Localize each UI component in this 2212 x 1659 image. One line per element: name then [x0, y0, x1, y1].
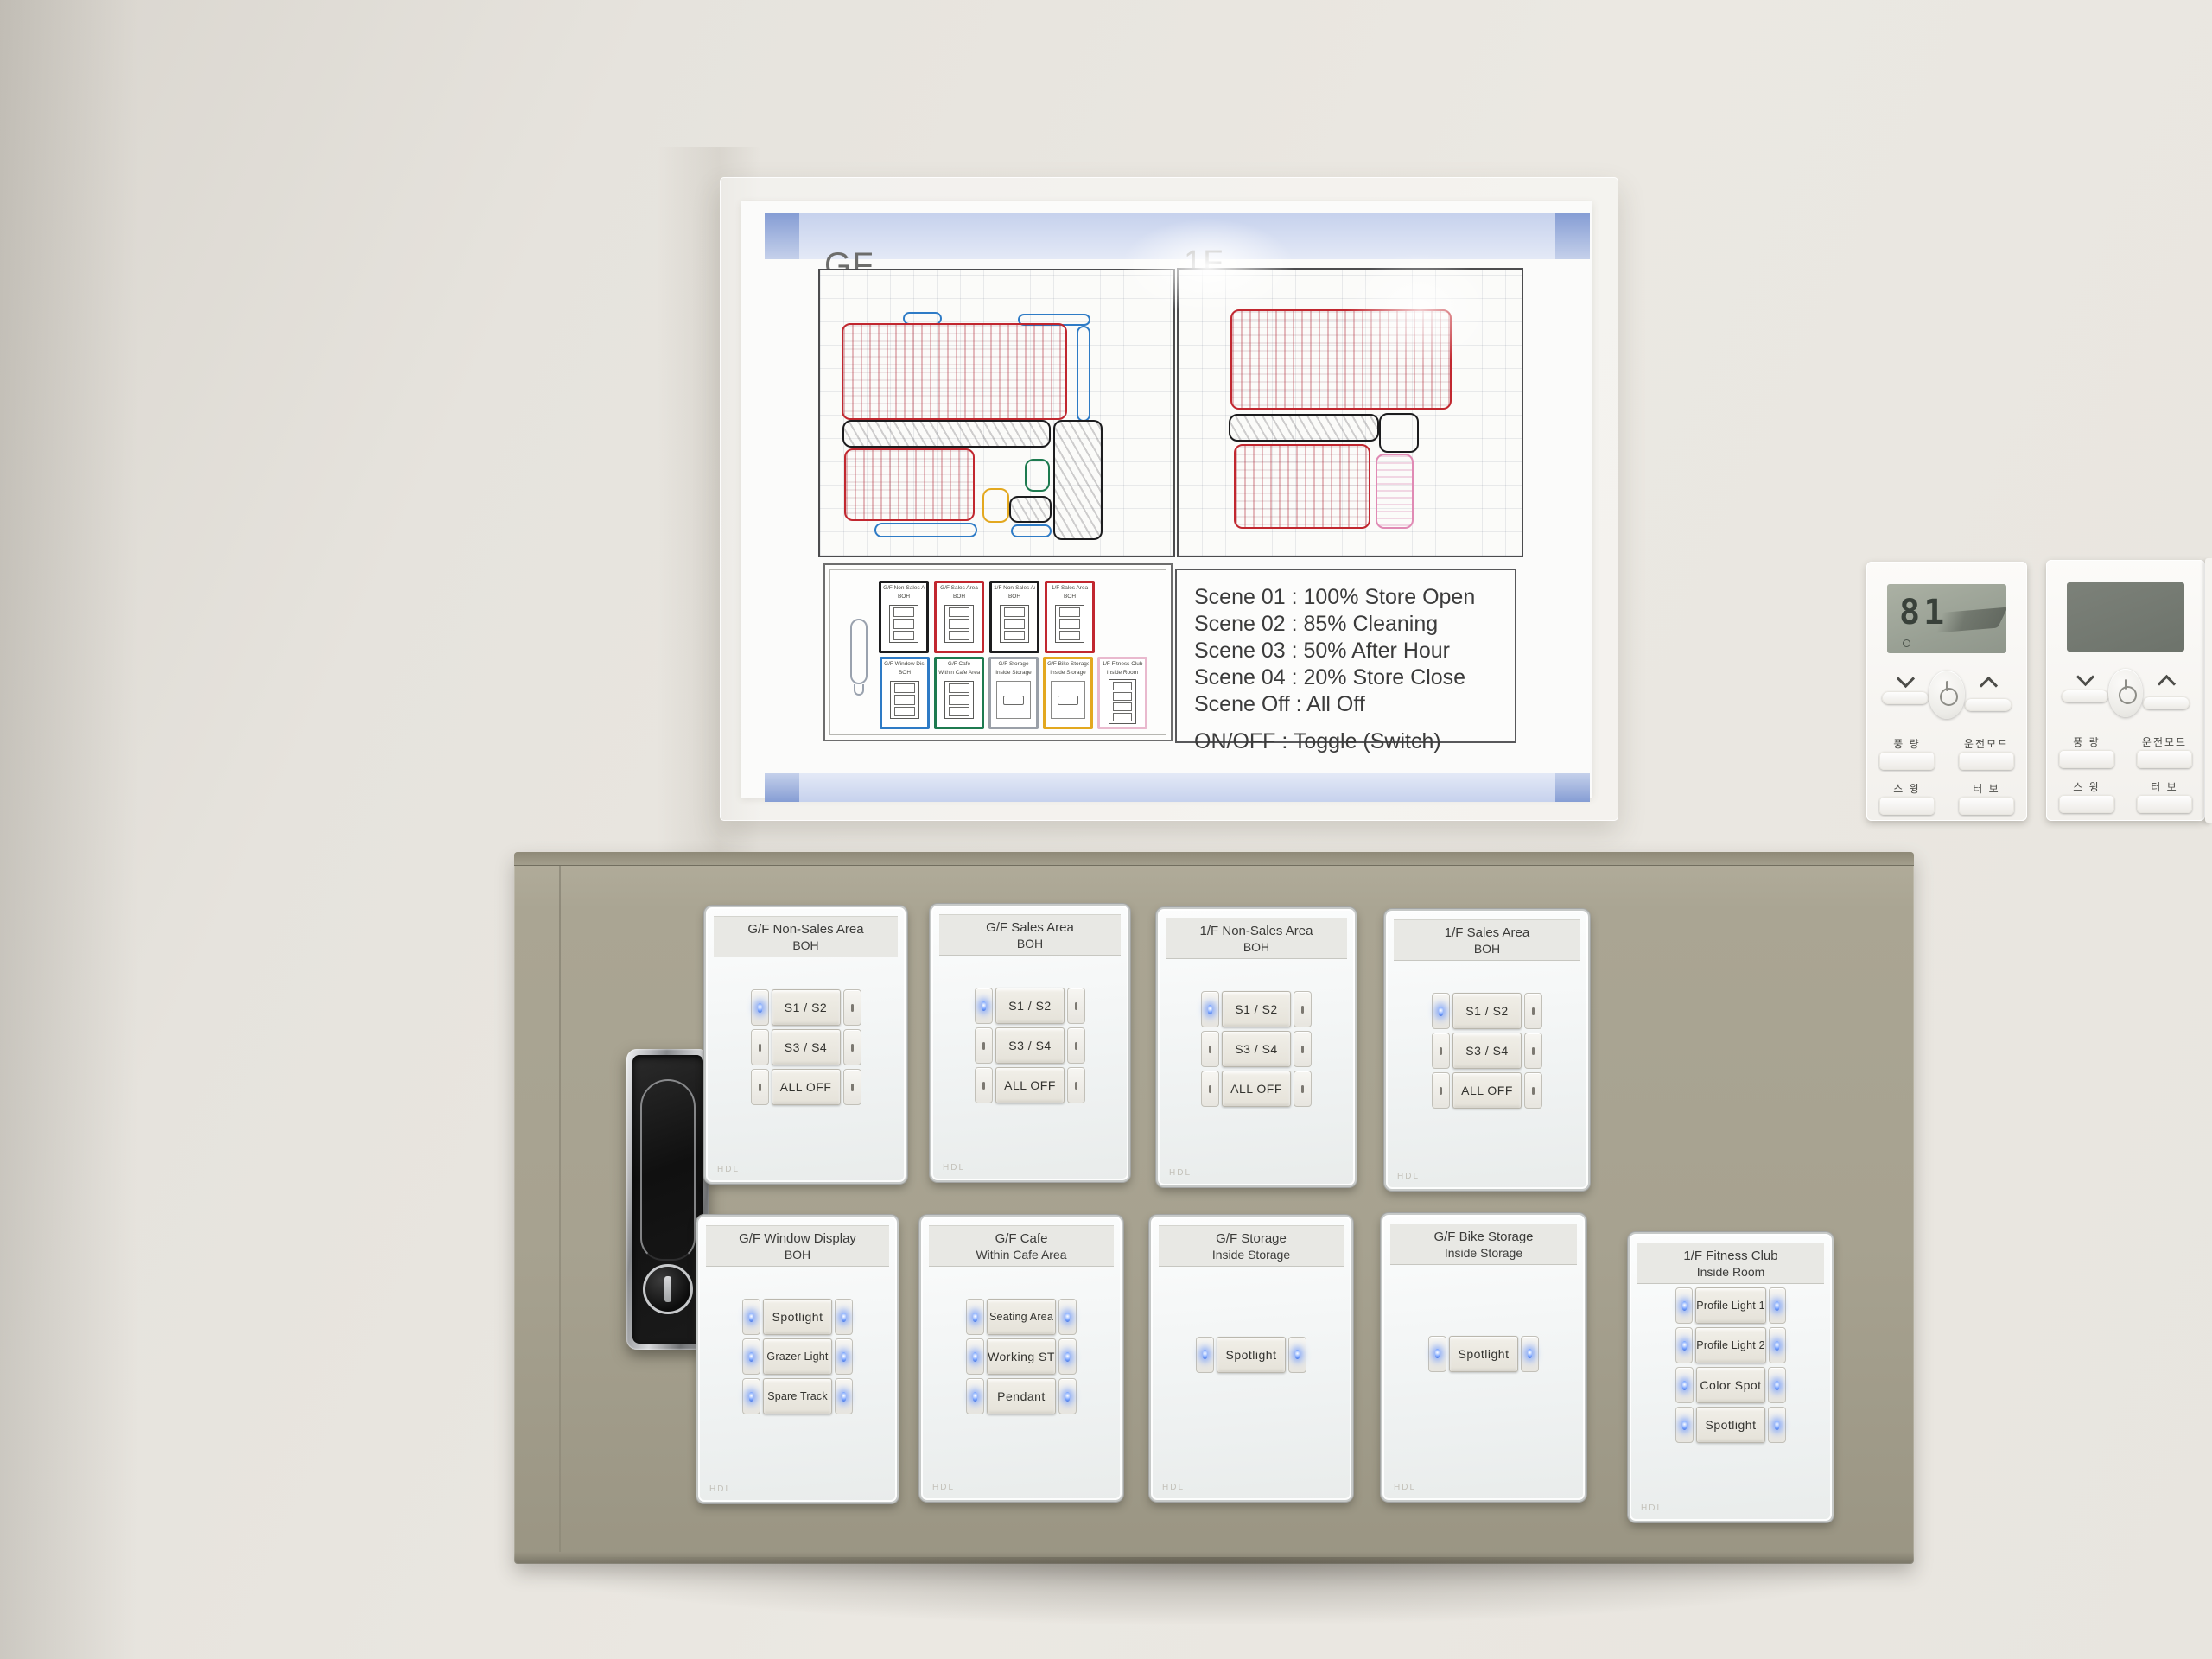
- bulb-diagram: [844, 619, 875, 709]
- diagram-cell: [1003, 696, 1024, 705]
- floorplan-zone: [982, 488, 1009, 523]
- bulb-outline: [850, 619, 868, 684]
- led-indicator: [1775, 1421, 1779, 1430]
- turbo-label: 터 보: [2151, 779, 2177, 791]
- switch-button-cap[interactable]: [975, 988, 993, 1024]
- controller-main-buttons: [1882, 669, 2012, 729]
- switch-button-row[interactable]: Profile Light 2: [1675, 1327, 1786, 1363]
- switch-button[interactable]: S3 / S4: [995, 1027, 1065, 1064]
- diagram-cell: [893, 631, 914, 640]
- switch-button-cap[interactable]: [742, 1299, 760, 1335]
- handle-grip[interactable]: [640, 1079, 696, 1261]
- switch-button[interactable]: Color Spot: [1696, 1367, 1765, 1403]
- up-button[interactable]: [2143, 667, 2190, 709]
- switch-button-cap[interactable]: [1432, 1033, 1450, 1069]
- diagram-cell: [1004, 607, 1025, 617]
- switch-button-cap[interactable]: [835, 1299, 853, 1335]
- led-slot: [982, 1042, 985, 1050]
- switch-button[interactable]: S1 / S2: [995, 988, 1065, 1024]
- switch-button-row[interactable]: Spotlight: [742, 1299, 853, 1335]
- legend-mini-panel: G/F Bike StorageInside Storage: [1043, 657, 1093, 729]
- legend-mini-switch-diagram: [1055, 605, 1084, 643]
- floorplan-zone: [1234, 444, 1371, 529]
- switch-button-cap[interactable]: [1294, 1031, 1312, 1067]
- floorplan-zone: [1077, 326, 1090, 422]
- led-indicator: [1065, 1352, 1070, 1362]
- switch-button-cap[interactable]: [1675, 1287, 1693, 1324]
- panel-title-line2: Within Cafe Area: [929, 1247, 1114, 1262]
- diagram-cell: [894, 683, 915, 693]
- diagram-cell: [894, 695, 915, 704]
- power-button[interactable]: [2108, 669, 2143, 717]
- switch-button[interactable]: S3 / S4: [772, 1029, 841, 1065]
- led-indicator: [1682, 1301, 1687, 1311]
- operation-mode-label: 운전모드: [1964, 736, 2009, 748]
- diagram-cell: [1113, 682, 1132, 690]
- switch-button-cap[interactable]: [843, 989, 861, 1026]
- legend-mini-panel: G/F Non-Sales AreaBOH: [879, 581, 929, 653]
- switch-button-cap[interactable]: [1428, 1336, 1446, 1372]
- switch-button-cap[interactable]: [975, 1027, 993, 1064]
- chevron-up-icon: [1979, 677, 1997, 695]
- switch-button-stack: Profile Light 1Profile Light 2Color Spot…: [1630, 1287, 1832, 1460]
- turbo-label: 터 보: [1973, 781, 1999, 793]
- switch-button-cap[interactable]: [1769, 1287, 1786, 1324]
- switch-button-cap[interactable]: [1524, 1033, 1542, 1069]
- brand-mark: HDL: [1162, 1483, 1185, 1492]
- led-indicator: [842, 1313, 846, 1322]
- switch-button-cap[interactable]: [1294, 1071, 1312, 1107]
- switch-button-row[interactable]: S1 / S2: [975, 988, 1085, 1024]
- turbo-button[interactable]: 터 보: [1959, 781, 2014, 815]
- switch-panel-gf-bike-storage: G/F Bike Storage Inside Storage Spotligh…: [1381, 1213, 1586, 1502]
- swing-label: 스 윙: [2073, 779, 2100, 791]
- switch-button-cap[interactable]: [1769, 1327, 1786, 1363]
- switch-button[interactable]: Seating Area: [987, 1299, 1056, 1335]
- legend-mini-title: 1/F Non-Sales Area: [994, 585, 1035, 591]
- switch-button[interactable]: Spotlight: [1217, 1337, 1286, 1373]
- switch-button[interactable]: Working ST: [987, 1338, 1056, 1375]
- legend-mini-switch-diagram: [944, 681, 974, 719]
- switch-button-cap[interactable]: [1432, 1072, 1450, 1109]
- panel-title-line2: Inside Storage: [1390, 1245, 1577, 1261]
- legend-mini-subtitle: Inside Storage: [993, 670, 1034, 676]
- diagram-cell: [1059, 631, 1080, 640]
- led-slot: [759, 1084, 761, 1091]
- diagram-cell: [1059, 607, 1080, 617]
- switch-button-cap[interactable]: [1196, 1337, 1214, 1373]
- switch-button-cap[interactable]: [1675, 1327, 1693, 1363]
- poster-top-banner: [765, 213, 1590, 259]
- switch-button[interactable]: S3 / S4: [1452, 1033, 1522, 1069]
- switch-button-cap[interactable]: [1675, 1367, 1694, 1403]
- led-indicator: [973, 1352, 977, 1362]
- switch-panel-gf-window-display: G/F Window Display BOH SpotlightGrazer L…: [696, 1215, 899, 1503]
- switch-button-cap[interactable]: [843, 1069, 861, 1105]
- legend-mini-title: 1/F Sales Area: [1049, 585, 1090, 591]
- down-key[interactable]: [1882, 691, 1929, 704]
- switch-button-cap[interactable]: [975, 1067, 993, 1103]
- switch-button-row[interactable]: S3 / S4: [975, 1027, 1085, 1064]
- legend-mini-switch-diagram: [1051, 681, 1085, 719]
- switch-button-row[interactable]: S1 / S2: [1201, 991, 1312, 1027]
- turbo-key[interactable]: [1959, 797, 2014, 815]
- brand-mark: HDL: [943, 1163, 965, 1173]
- poster-paper: GF 1F G/F Non-Sales AreaBOHG/F Sales Are…: [741, 201, 1592, 798]
- floorplan-zone: [1229, 414, 1380, 441]
- switch-button-cap[interactable]: [1768, 1407, 1786, 1443]
- controller-edge-sliver: [2205, 558, 2212, 823]
- panel-title-line1: 1/F Fitness Club: [1637, 1248, 1824, 1264]
- floorplan-zone: [1230, 309, 1452, 410]
- switch-button-cap[interactable]: [1067, 1067, 1085, 1103]
- switch-button-cap[interactable]: [1768, 1367, 1786, 1403]
- switch-button-row[interactable]: S3 / S4: [1201, 1031, 1312, 1067]
- switch-button-cap[interactable]: [966, 1299, 984, 1335]
- turbo-key[interactable]: [2137, 795, 2192, 813]
- switch-button-cap[interactable]: [966, 1378, 984, 1414]
- legend-mini-subtitle: BOH: [1049, 594, 1090, 600]
- switch-button[interactable]: ALL OFF: [1222, 1071, 1291, 1107]
- switch-button[interactable]: S1 / S2: [1222, 991, 1291, 1027]
- switch-button-row[interactable]: S1 / S2: [1432, 993, 1542, 1029]
- switch-button-row[interactable]: ALL OFF: [975, 1067, 1085, 1103]
- switch-button-row[interactable]: Pendant: [966, 1378, 1077, 1414]
- lcd-degree-icon: [1903, 639, 1910, 647]
- led-indicator: [973, 1392, 977, 1402]
- diagram-cell: [949, 631, 969, 640]
- switch-button-cap[interactable]: [1201, 1031, 1219, 1067]
- led-slot: [1440, 1047, 1442, 1055]
- led-slot: [1440, 1087, 1442, 1095]
- diagram-cell: [949, 607, 969, 617]
- switch-button[interactable]: ALL OFF: [995, 1067, 1065, 1103]
- legend-mini-subtitle: BOH: [938, 594, 980, 600]
- controller-lcd: 81: [1887, 584, 2006, 653]
- led-indicator: [758, 1003, 762, 1013]
- diagram-cell: [1113, 692, 1132, 701]
- legend-mini-subtitle: BOH: [884, 670, 925, 676]
- switch-button-cap[interactable]: [1058, 1378, 1077, 1414]
- panel-title-line1: 1/F Non-Sales Area: [1166, 923, 1347, 939]
- chevron-down-icon: [2075, 668, 2094, 686]
- switch-button-stack: S1 / S2S3 / S4ALL OFF: [706, 989, 906, 1122]
- switch-panel-1f-fitness-club: 1/F Fitness Club Inside Room Profile Lig…: [1628, 1232, 1834, 1522]
- panel-title-line1: G/F Non-Sales Area: [714, 921, 898, 938]
- panel-title-line2: Inside Storage: [1159, 1247, 1344, 1262]
- scene-list: Scene 01 : 100% Store Open Scene 02 : 85…: [1175, 569, 1516, 743]
- floorplan-zone: [1011, 524, 1052, 537]
- legend-mini-panel: 1/F Fitness ClubInside Room: [1097, 657, 1147, 729]
- panel-title-line2: BOH: [1394, 941, 1580, 957]
- switch-button-row[interactable]: S3 / S4: [1432, 1033, 1542, 1069]
- switch-button-stack: S1 / S2S3 / S4ALL OFF: [1386, 993, 1588, 1128]
- switch-button-cap[interactable]: [1067, 988, 1085, 1024]
- switch-button-row[interactable]: ALL OFF: [1432, 1072, 1542, 1109]
- led-indicator: [1682, 1421, 1687, 1430]
- chevron-down-icon: [1896, 670, 1914, 688]
- floorplan-zone: [1379, 413, 1419, 453]
- led-slot: [851, 1044, 854, 1052]
- led-indicator: [749, 1352, 753, 1362]
- fan-volume-key[interactable]: [2059, 750, 2114, 768]
- switch-button-cap[interactable]: [742, 1378, 760, 1414]
- legend-mini-title: G/F Cafe: [938, 661, 980, 667]
- up-key[interactable]: [1965, 698, 2012, 711]
- legend-mini-switch-diagram: [1000, 605, 1029, 643]
- switch-button[interactable]: Grazer Light: [763, 1338, 832, 1375]
- switch-button-row[interactable]: Spotlight: [1196, 1337, 1306, 1373]
- legend-mini-subtitle: Inside Room: [1102, 670, 1143, 676]
- switch-button-cap[interactable]: [966, 1338, 984, 1375]
- down-key[interactable]: [2062, 690, 2108, 702]
- switch-button-cap[interactable]: [843, 1029, 861, 1065]
- floorplan-zone: [842, 323, 1068, 420]
- legend-mini-panel: 1/F Non-Sales AreaBOH: [989, 581, 1039, 653]
- led-indicator: [1203, 1350, 1207, 1359]
- legend-mini-title: G/F Window Display: [884, 661, 925, 667]
- switch-button-cap[interactable]: [1058, 1299, 1077, 1335]
- switch-button-stack: Spotlight: [1382, 1297, 1585, 1410]
- switch-button[interactable]: S1 / S2: [772, 989, 841, 1026]
- led-indicator: [1439, 1007, 1443, 1016]
- diagram-cell: [949, 619, 969, 628]
- switch-button-cap[interactable]: [751, 1069, 769, 1105]
- led-indicator: [1065, 1313, 1070, 1322]
- switch-button-row[interactable]: ALL OFF: [751, 1069, 861, 1105]
- up-button[interactable]: [1965, 669, 2012, 711]
- switch-panel-1f-sales-area: 1/F Sales Area BOH S1 / S2S3 / S4ALL OFF…: [1384, 909, 1590, 1191]
- cabinet-door-seam: [559, 866, 561, 1552]
- switch-button-row[interactable]: S3 / S4: [751, 1029, 861, 1065]
- switch-button-cap[interactable]: [1675, 1407, 1694, 1443]
- legend-mini-title: 1/F Fitness Club: [1102, 661, 1143, 667]
- key-lock-cylinder[interactable]: [643, 1264, 693, 1314]
- led-slot: [1532, 1087, 1535, 1095]
- up-key[interactable]: [2143, 696, 2190, 709]
- legend-mini-subtitle: BOH: [883, 594, 925, 600]
- switch-button-cap[interactable]: [1524, 993, 1542, 1029]
- switch-button-cap[interactable]: [1201, 991, 1219, 1027]
- brand-mark: HDL: [1394, 1483, 1416, 1492]
- switch-button-cap[interactable]: [1067, 1027, 1085, 1064]
- ac-controller: 풍 량운전모드스 윙터 보: [2046, 560, 2205, 821]
- switch-button-cap[interactable]: [1294, 991, 1312, 1027]
- scene-line: Scene 03 : 50% After Hour: [1194, 638, 1515, 664]
- panel-title-line1: G/F Storage: [1159, 1230, 1344, 1247]
- swing-button[interactable]: 스 윙: [2059, 779, 2114, 813]
- diagram-cell: [893, 619, 914, 628]
- switch-button[interactable]: Profile Light 1: [1695, 1287, 1765, 1324]
- scene-line: Scene 02 : 85% Cleaning: [1194, 611, 1515, 638]
- fan-volume-label: 풍 량: [1893, 736, 1920, 748]
- led-indicator: [1528, 1349, 1532, 1358]
- switch-panel-gf-cafe: G/F Cafe Within Cafe Area Seating AreaWo…: [919, 1215, 1123, 1502]
- switch-button-cap[interactable]: [1524, 1072, 1542, 1109]
- legend-mini-subtitle: Within Cafe Area: [938, 670, 980, 676]
- switch-button-cap[interactable]: [1432, 993, 1450, 1029]
- led-indicator: [1682, 1381, 1687, 1390]
- led-indicator: [842, 1392, 846, 1402]
- controller-function-row: 풍 량운전모드: [2059, 734, 2192, 768]
- panel-title: G/F Non-Sales Area BOH: [714, 916, 898, 957]
- operation-mode-key[interactable]: [1959, 752, 2014, 770]
- legend-mini-subtitle: Inside Storage: [1047, 670, 1089, 676]
- legend-mini-title: G/F Non-Sales Area: [883, 585, 925, 591]
- led-slot: [1209, 1085, 1211, 1093]
- operation-mode-button[interactable]: 운전모드: [1959, 736, 2014, 770]
- swing-key[interactable]: [1879, 797, 1935, 815]
- legend-mini-switch-diagram: [944, 605, 974, 643]
- led-slot: [982, 1082, 985, 1090]
- diagram-cell: [1058, 696, 1078, 705]
- led-indicator: [1208, 1005, 1212, 1014]
- controller-function-row: 풍 량운전모드: [1879, 736, 2014, 770]
- switch-panel-1f-non-sales-area: 1/F Non-Sales Area BOH S1 / S2S3 / S4ALL…: [1156, 907, 1357, 1187]
- switch-button-cap[interactable]: [751, 989, 769, 1026]
- panel-title: G/F Bike Storage Inside Storage: [1390, 1224, 1577, 1265]
- legend-mini-title: G/F Storage: [993, 661, 1034, 667]
- panel-title: G/F Window Display BOH: [706, 1225, 889, 1267]
- led-indicator: [982, 1001, 986, 1011]
- legend-mini-switch-diagram: [1109, 679, 1136, 724]
- operation-mode-button[interactable]: 운전모드: [2137, 734, 2192, 768]
- switch-button-cap[interactable]: [835, 1378, 853, 1414]
- switch-button-cap[interactable]: [1521, 1336, 1539, 1372]
- panel-title: 1/F Sales Area BOH: [1394, 919, 1580, 961]
- switch-button-row[interactable]: Profile Light 1: [1675, 1287, 1786, 1324]
- switch-button-row[interactable]: Spare Track: [742, 1378, 853, 1414]
- cabinet-top-edge: [514, 852, 1914, 866]
- led-slot: [851, 1084, 854, 1091]
- brand-mark: HDL: [1397, 1172, 1420, 1181]
- led-indicator: [1682, 1341, 1687, 1351]
- floor-plan-poster: GF 1F G/F Non-Sales AreaBOHG/F Sales Are…: [720, 177, 1618, 821]
- switch-button[interactable]: Pendant: [987, 1378, 1056, 1414]
- switch-button-row[interactable]: S1 / S2: [751, 989, 861, 1026]
- panel-title-line2: BOH: [1166, 939, 1347, 955]
- controller-lcd: [2067, 582, 2184, 652]
- panel-title: G/F Storage Inside Storage: [1159, 1225, 1344, 1267]
- fan-volume-button[interactable]: 풍 량: [2059, 734, 2114, 768]
- control-cabinet: G/F Non-Sales Area BOH S1 / S2S3 / S4ALL…: [514, 852, 1914, 1564]
- scene-line: Scene 04 : 20% Store Close: [1194, 664, 1515, 691]
- diagram-cell: [893, 607, 914, 617]
- switch-button-cap[interactable]: [835, 1338, 853, 1375]
- operation-mode-label: 운전모드: [2142, 734, 2187, 747]
- diagram-cell: [949, 695, 969, 704]
- switch-panel-gf-non-sales-area: G/F Non-Sales Area BOH S1 / S2S3 / S4ALL…: [704, 906, 907, 1184]
- operation-mode-key[interactable]: [2137, 750, 2192, 768]
- switch-button-row[interactable]: Color Spot: [1675, 1367, 1786, 1403]
- switch-button[interactable]: Profile Light 2: [1695, 1327, 1765, 1363]
- legend-mini-title: G/F Sales Area: [938, 585, 980, 591]
- switch-button-cap[interactable]: [751, 1029, 769, 1065]
- gf-floorplan: [818, 269, 1175, 557]
- panel-title-line2: BOH: [714, 938, 898, 953]
- diagram-cell: [1113, 702, 1132, 711]
- diagram-cell: [1113, 713, 1132, 721]
- switch-button-stack: S1 / S2S3 / S4ALL OFF: [1158, 991, 1355, 1125]
- switch-button[interactable]: ALL OFF: [1452, 1072, 1522, 1109]
- switch-button[interactable]: S1 / S2: [1452, 993, 1522, 1029]
- led-indicator: [1775, 1341, 1779, 1351]
- onoff-line: ON/OFF : Toggle (Switch): [1194, 728, 1515, 755]
- switch-button[interactable]: ALL OFF: [772, 1069, 841, 1105]
- switch-button[interactable]: Spotlight: [1696, 1407, 1765, 1443]
- swing-button[interactable]: 스 윙: [1879, 781, 1935, 815]
- floorplan-zone: [1009, 496, 1052, 523]
- switch-button[interactable]: Spotlight: [1449, 1336, 1518, 1372]
- switch-button-row[interactable]: Spotlight: [1675, 1407, 1786, 1443]
- led-indicator: [1065, 1392, 1070, 1402]
- switch-legend: G/F Non-Sales AreaBOHG/F Sales AreaBOH1/…: [823, 563, 1173, 741]
- switch-button[interactable]: Spare Track: [763, 1378, 832, 1414]
- floorplan-zone: [1053, 420, 1103, 540]
- diagram-cell: [1004, 619, 1025, 628]
- switch-button[interactable]: Spotlight: [763, 1299, 832, 1335]
- diagram-cell: [894, 707, 915, 716]
- led-slot: [1075, 1002, 1077, 1010]
- down-button[interactable]: [2062, 667, 2108, 702]
- floorplan-zone: [874, 523, 977, 537]
- led-indicator: [973, 1313, 977, 1322]
- down-button[interactable]: [1882, 669, 1929, 704]
- brand-mark: HDL: [1641, 1503, 1663, 1513]
- switch-button[interactable]: S3 / S4: [1222, 1031, 1291, 1067]
- chevron-up-icon: [2157, 675, 2175, 693]
- wall-shadow-left: [0, 0, 138, 1659]
- turbo-button[interactable]: 터 보: [2137, 779, 2192, 813]
- fan-volume-label: 풍 량: [2073, 734, 2100, 747]
- diagram-cell: [1059, 619, 1080, 628]
- led-indicator: [1435, 1349, 1440, 1358]
- legend-mini-panel: 1/F Sales AreaBOH: [1045, 581, 1095, 653]
- legend-mini-switch-diagram: [889, 605, 918, 643]
- legend-mini-panel: G/F Sales AreaBOH: [934, 581, 984, 653]
- diagram-cell: [949, 707, 969, 716]
- switch-button-cap[interactable]: [1058, 1338, 1077, 1375]
- panel-title-line2: BOH: [706, 1247, 889, 1262]
- led-slot: [1209, 1046, 1211, 1053]
- brand-mark: HDL: [1169, 1168, 1192, 1178]
- led-slot: [1301, 1085, 1304, 1093]
- switch-button-cap[interactable]: [1288, 1337, 1306, 1373]
- fan-volume-button[interactable]: 풍 량: [1879, 736, 1935, 770]
- brand-mark: HDL: [709, 1484, 732, 1494]
- switch-button-row[interactable]: Seating Area: [966, 1299, 1077, 1335]
- controller-main-buttons: [2062, 667, 2190, 728]
- controller-function-row: 스 윙터 보: [2059, 779, 2192, 813]
- switch-button-stack: S1 / S2S3 / S4ALL OFF: [931, 988, 1128, 1120]
- switch-button-row[interactable]: ALL OFF: [1201, 1071, 1312, 1107]
- led-indicator: [1775, 1381, 1779, 1390]
- switch-button-row[interactable]: Grazer Light: [742, 1338, 853, 1375]
- led-slot: [851, 1004, 854, 1012]
- swing-key[interactable]: [2059, 795, 2114, 813]
- switch-button-cap[interactable]: [1201, 1071, 1219, 1107]
- floorplan-zone: [842, 420, 1051, 447]
- led-indicator: [749, 1313, 753, 1322]
- switch-button-cap[interactable]: [742, 1338, 760, 1375]
- fan-volume-key[interactable]: [1879, 752, 1935, 770]
- diagram-cell: [1004, 631, 1025, 640]
- panel-title-line2: Inside Room: [1637, 1264, 1824, 1280]
- power-button[interactable]: [1929, 671, 1965, 719]
- switch-button-row[interactable]: Spotlight: [1428, 1336, 1539, 1372]
- switch-button-row[interactable]: Working ST: [966, 1338, 1077, 1375]
- controller-function-row: 스 윙터 보: [1879, 781, 2014, 815]
